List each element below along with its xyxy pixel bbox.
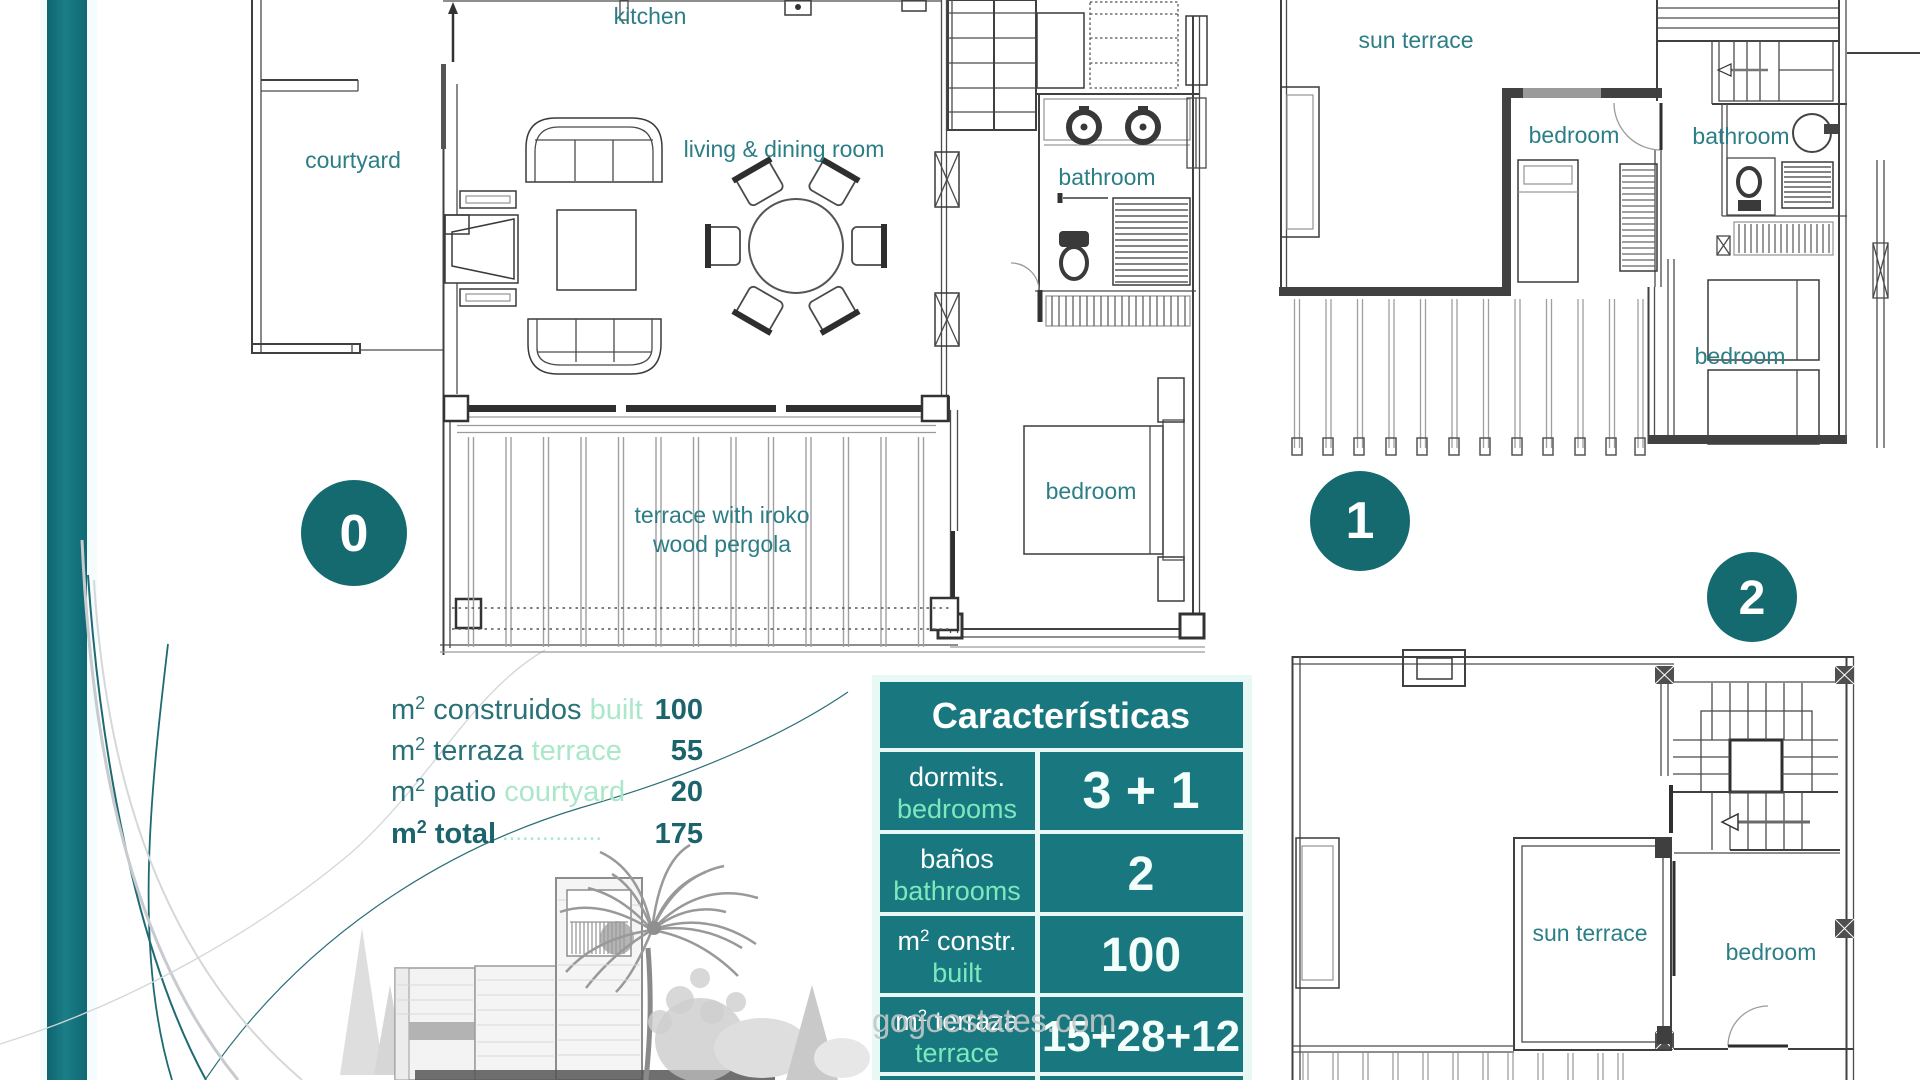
svg-text:bedrooms: bedrooms [897, 794, 1017, 824]
svg-text:baños: baños [920, 844, 994, 874]
svg-text:built: built [932, 958, 982, 988]
svg-text:Características: Características [932, 695, 1190, 736]
svg-text:terrace: terrace [915, 1038, 999, 1068]
svg-text:100: 100 [1101, 929, 1181, 982]
svg-text:m2 construidos built: m2 construidos built [391, 693, 643, 726]
svg-text:0: 0 [340, 505, 369, 563]
svg-text:wood pergola: wood pergola [652, 531, 791, 557]
svg-text:bedroom: bedroom [1046, 478, 1137, 504]
svg-text:100: 100 [655, 694, 703, 726]
svg-text:...............: ............... [502, 819, 602, 846]
svg-text:courtyard: courtyard [305, 147, 401, 173]
svg-text:20: 20 [671, 776, 703, 808]
svg-text:m2 terraza terrace: m2 terraza terrace [391, 734, 622, 767]
svg-text:2: 2 [1739, 572, 1766, 625]
svg-text:3 + 1: 3 + 1 [1082, 762, 1199, 820]
svg-text:m2 constr.: m2 constr. [897, 926, 1016, 956]
svg-text:bathroom: bathroom [1058, 164, 1155, 190]
svg-text:bathroom: bathroom [1692, 123, 1789, 149]
svg-text:bedroom: bedroom [1695, 343, 1786, 369]
svg-text:terrace with iroko: terrace with iroko [634, 502, 809, 528]
svg-text:sun terrace: sun terrace [1532, 920, 1647, 946]
svg-text:55: 55 [671, 735, 703, 767]
svg-text:dormits.: dormits. [909, 762, 1005, 792]
svg-text:175: 175 [655, 818, 703, 850]
svg-text:2: 2 [1128, 848, 1155, 901]
svg-text:m2 total: m2 total [391, 817, 496, 850]
svg-text:living & dining room: living & dining room [684, 136, 885, 162]
svg-text:gogoestates.com: gogoestates.com [872, 1002, 1116, 1039]
svg-text:1: 1 [1346, 492, 1375, 550]
svg-text:m2 patio courtyard: m2 patio courtyard [391, 775, 625, 808]
svg-text:bedroom: bedroom [1726, 939, 1817, 965]
svg-text:bedroom: bedroom [1529, 122, 1620, 148]
svg-text:kitchen: kitchen [614, 3, 687, 29]
svg-text:bathrooms: bathrooms [893, 876, 1021, 906]
svg-text:sun terrace: sun terrace [1358, 27, 1473, 53]
